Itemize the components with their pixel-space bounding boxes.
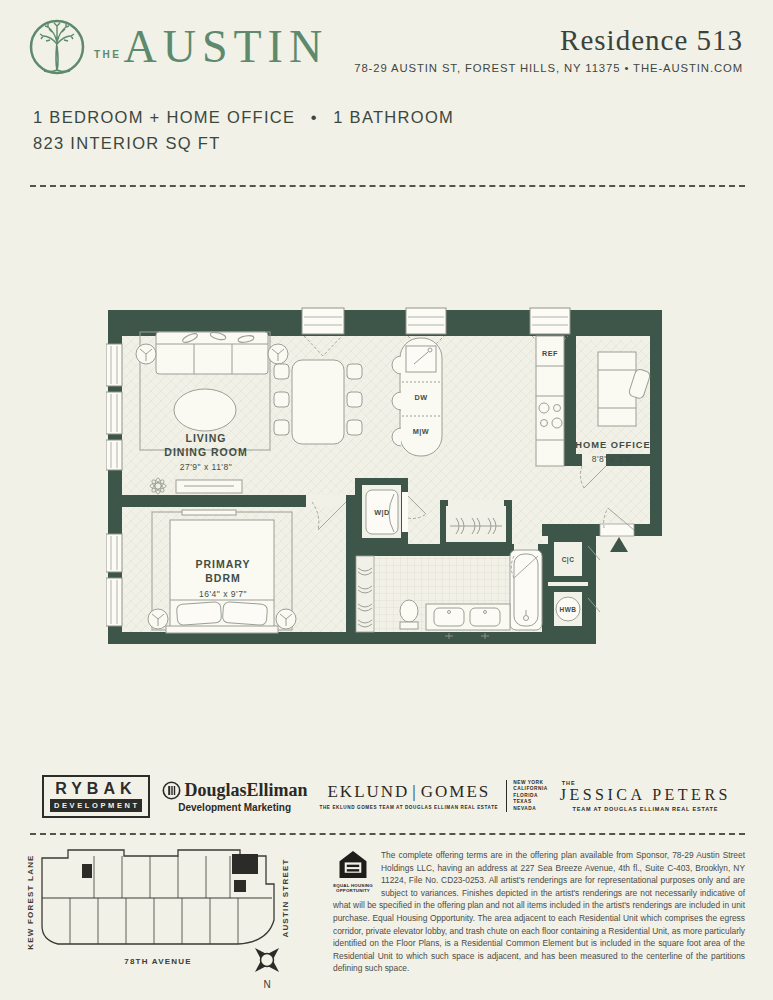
dw-label: DW <box>414 393 427 402</box>
hwb-label: HWB <box>559 606 576 613</box>
dining-table <box>292 360 344 444</box>
equal-housing-caption: EQUAL HOUSING OPPORTUNITY <box>333 883 373 893</box>
floorplan-flyer: THE AUSTIN Residence 513 78-29 AUSTIN ST… <box>0 0 773 1000</box>
legal-block: EQUAL HOUSING OPPORTUNITY The complete o… <box>333 849 745 975</box>
disclaimer-text: The complete offering terms are in the o… <box>333 850 745 973</box>
rybak-development: DEVELOPMENT <box>50 799 142 812</box>
dashed-divider-top <box>30 185 745 187</box>
coffee-table <box>174 389 236 431</box>
living-room-dims: 27'9" x 11'8" <box>180 462 233 472</box>
brand-logo: THE AUSTIN <box>28 12 328 82</box>
site-key-plan: KEW FOREST LANE AUSTIN STREET 78TH AVENU… <box>26 840 326 990</box>
unit-sqft: 823 INTERIOR SQ FT <box>33 130 454 156</box>
broker-logos: RYBAK DEVELOPMENT DouglasElliman Develop… <box>0 770 773 822</box>
wd-label: W|D <box>374 508 390 517</box>
compass-rose <box>252 945 282 975</box>
unit-info: 1 BEDROOM + HOME OFFICE • 1 BATHROOM 823… <box>33 104 454 156</box>
primary-bdrm-label2: BDRM <box>205 572 241 584</box>
toilet <box>400 600 418 622</box>
unit-summary: 1 BEDROOM + HOME OFFICE • 1 BATHROOM <box>33 104 454 130</box>
cc-label: C|C <box>562 556 575 564</box>
street-kew-forest-lane: KEW FOREST LANE <box>26 854 35 949</box>
street-78th-avenue: 78TH AVENUE <box>124 957 191 966</box>
brand-the: THE <box>94 49 122 60</box>
jessica-peters-name: JESSICA PETERS <box>560 786 731 804</box>
primary-bdrm-label: PRIMARY <box>195 558 250 570</box>
equal-housing-logo: EQUAL HOUSING OPPORTUNITY <box>333 851 373 893</box>
compass-n: N <box>263 979 270 990</box>
brand-name: AUSTIN <box>124 12 329 82</box>
street-austin-street: AUSTIN STREET <box>281 858 290 937</box>
entry-arrow <box>610 537 628 552</box>
address-line: 78-29 AUSTIN ST, FOREST HILLS, NY 11375 … <box>354 62 743 74</box>
unit-513-marker <box>232 854 258 874</box>
douglas-elliman-icon <box>162 781 181 800</box>
living-room-label2: DINING ROOM <box>164 446 247 458</box>
eklund-gomes-name: EKLUND|GOMES <box>320 782 499 802</box>
living-room-label: LIVING <box>185 432 226 444</box>
eklund-gomes-logo: EKLUND|GOMES THE EKLUND GOMES TEAM AT DO… <box>320 780 548 813</box>
home-office-dims: 8'8" x 7'3" <box>592 454 635 464</box>
equal-housing-icon <box>338 851 368 879</box>
floor-plan: LIVING DINING ROOM 27'9" x 11'8" PRIMARY… <box>106 306 666 646</box>
rybak-name: RYBAK <box>50 780 142 797</box>
pillow <box>176 601 221 625</box>
residence-title: Residence 513 <box>560 24 743 57</box>
douglas-elliman-name: DouglasElliman <box>185 780 308 801</box>
jessica-peters-logo: THE JESSICA PETERS TEAM AT DOUGLAS ELLIM… <box>560 780 731 812</box>
rybak-logo: RYBAK DEVELOPMENT <box>42 775 150 818</box>
eklund-gomes-sub: THE EKLUND GOMES TEAM AT DOUGLAS ELLIMAN… <box>320 805 499 810</box>
douglas-elliman-logo: DouglasElliman Development Marketing <box>162 780 308 813</box>
tree-icon <box>28 12 86 82</box>
eklund-gomes-states: NEW YORK CALIFORNIA FLORIDA TEXAS NEVADA <box>506 780 548 813</box>
ref-label: REF <box>542 349 558 358</box>
tv-console <box>182 510 236 515</box>
home-office-label: HOME OFFICE <box>575 440 651 450</box>
dashed-divider-bottom <box>30 833 745 835</box>
sofa <box>156 332 268 374</box>
jessica-peters-sub: TEAM AT DOUGLAS ELLIMAN REAL ESTATE <box>560 806 731 812</box>
headboard <box>166 626 278 633</box>
mw-label: M|W <box>413 427 430 436</box>
pillow <box>222 601 267 625</box>
douglas-elliman-sub: Development Marketing <box>178 802 291 813</box>
bathtub <box>510 550 542 630</box>
primary-bdrm-dims: 16'4" x 9'7" <box>199 589 247 599</box>
